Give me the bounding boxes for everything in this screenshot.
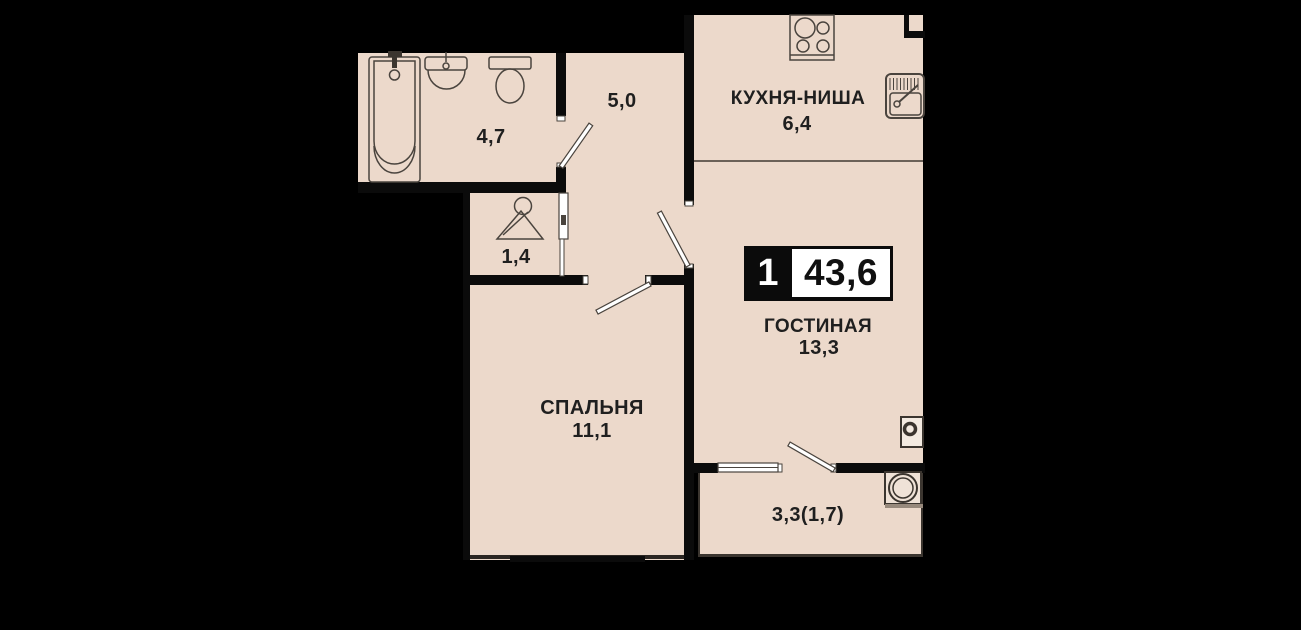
closet-floor [463, 185, 566, 285]
closet-area: 1,4 [466, 247, 566, 268]
hallway-area: 5,0 [572, 91, 672, 112]
total-area: 43,6 [792, 249, 890, 297]
kitchen-label: КУХНЯ-НИША [698, 88, 898, 109]
living-label: ГОСТИНАЯ [718, 316, 918, 337]
apartment-summary-badge: 1 43,6 [744, 246, 893, 301]
kitchen-living-floor [688, 15, 923, 470]
vent-shaft-notch [904, 31, 925, 38]
balcony-area: 3,3(1,7) [708, 505, 908, 526]
bedroom-area: 11,1 [492, 421, 692, 442]
electric-panel-icon [901, 417, 923, 447]
bedroom-window [510, 556, 645, 562]
living-area: 13,3 [719, 338, 919, 359]
washing-machine-icon [885, 472, 923, 508]
bathroom-area: 4,7 [441, 127, 541, 148]
balcony-window-icon [718, 463, 778, 472]
floor-plan: КУХНЯ-НИША 6,4 5,0 4,7 1,4 СПАЛЬНЯ 11,1 … [0, 0, 1301, 630]
kitchen-area: 6,4 [697, 114, 897, 135]
kitchen-living-divider [690, 160, 923, 162]
bedroom-label: СПАЛЬНЯ [492, 398, 692, 419]
bedroom-floor [463, 278, 694, 560]
hallway-floor [556, 53, 694, 285]
vent-shaft-notch [904, 15, 909, 33]
rooms-count: 1 [744, 246, 792, 301]
